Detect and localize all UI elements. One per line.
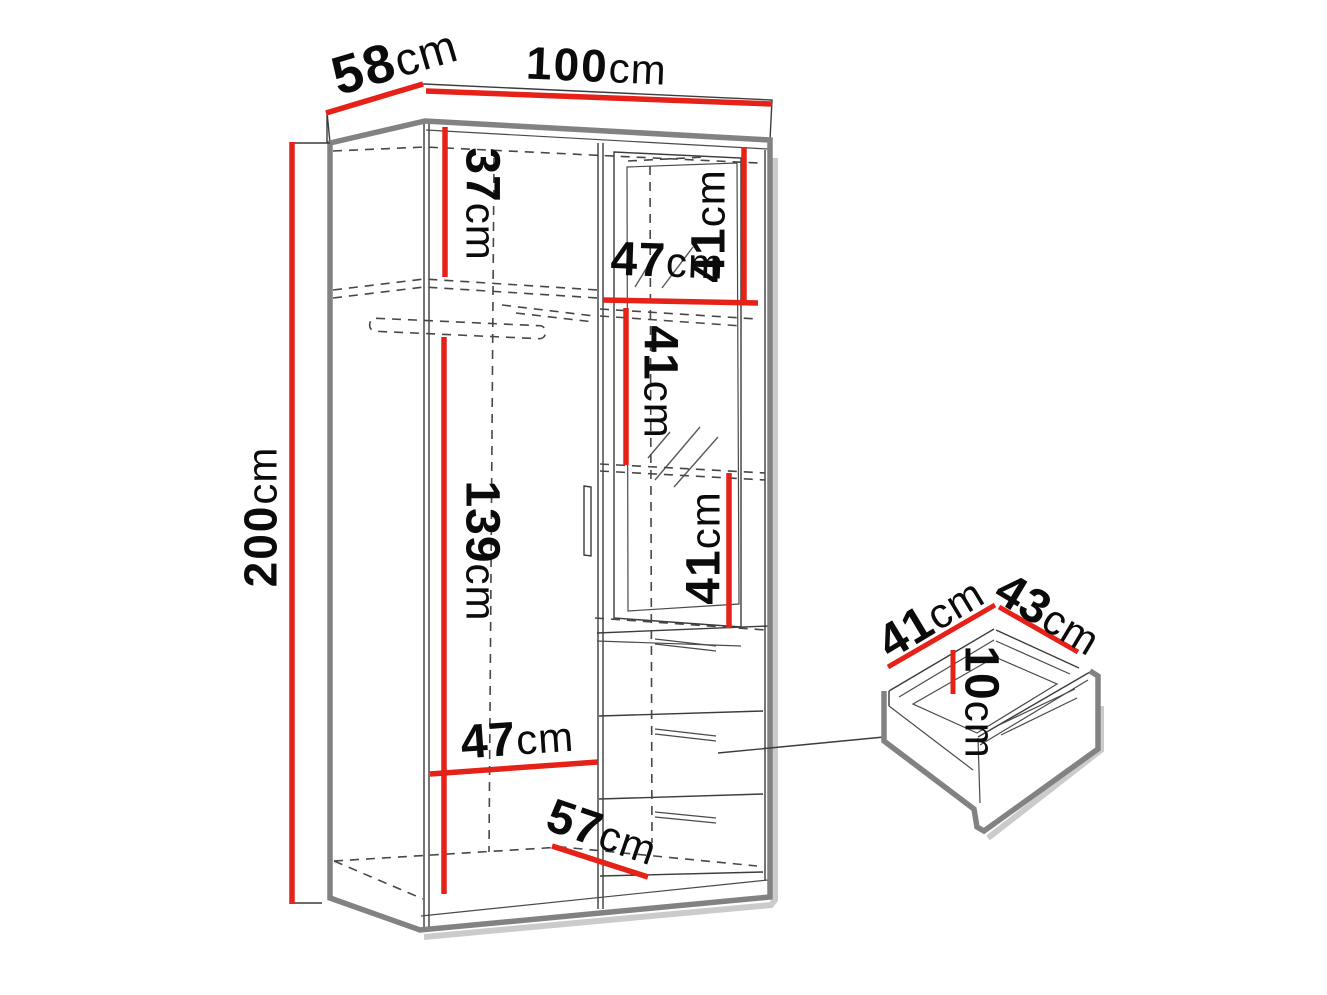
right-width-dimension-line: [603, 300, 758, 303]
right-top-dimension-label: 41cm: [683, 169, 736, 282]
diagram-canvas: 58cm 100cm 200cm 37cm 139cm 47cm 41cm 41…: [0, 0, 1327, 995]
width-dimension-label: 100cm: [525, 37, 668, 95]
left-width-dimension-label: 47cm: [459, 709, 576, 770]
mirror-lower-dimension-label: 41cm: [678, 491, 731, 604]
mirror-upper-dimension-label: 41cm: [633, 325, 686, 438]
drawer-height-dimension-label: 10cm: [954, 645, 1007, 758]
drawer-front-handle-groove: [999, 689, 1075, 725]
height-dimension-label: 200cm: [235, 447, 287, 588]
upper-shelf-dimension-label: 37cm: [455, 147, 508, 260]
furniture-dimension-diagram: 58cm 100cm 200cm 37cm 139cm 47cm 41cm 41…: [0, 0, 1327, 995]
left-section-dimension-label: 139cm: [455, 480, 508, 621]
